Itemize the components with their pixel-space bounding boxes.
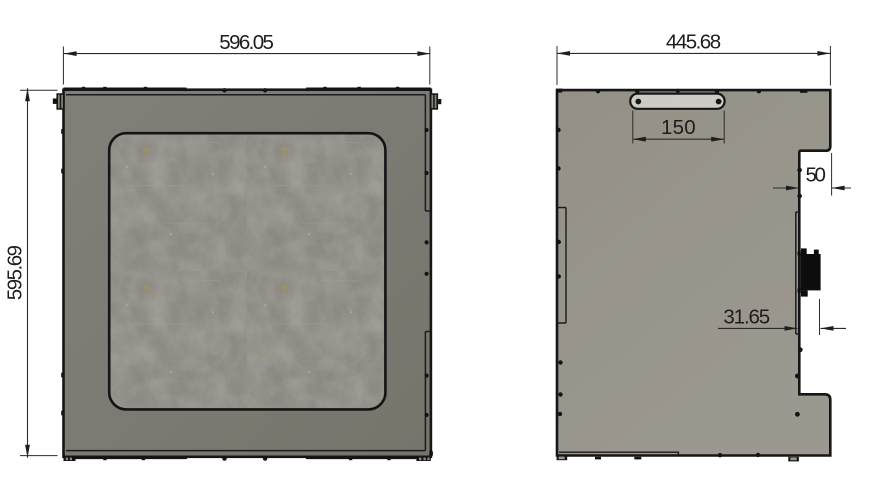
- svg-text:445.68: 445.68: [666, 31, 721, 54]
- svg-text:31.65: 31.65: [723, 306, 770, 329]
- svg-text:150: 150: [661, 116, 696, 139]
- svg-text:595.69: 595.69: [4, 245, 27, 300]
- svg-text:596.05: 596.05: [219, 31, 274, 54]
- svg-text:50: 50: [806, 164, 826, 187]
